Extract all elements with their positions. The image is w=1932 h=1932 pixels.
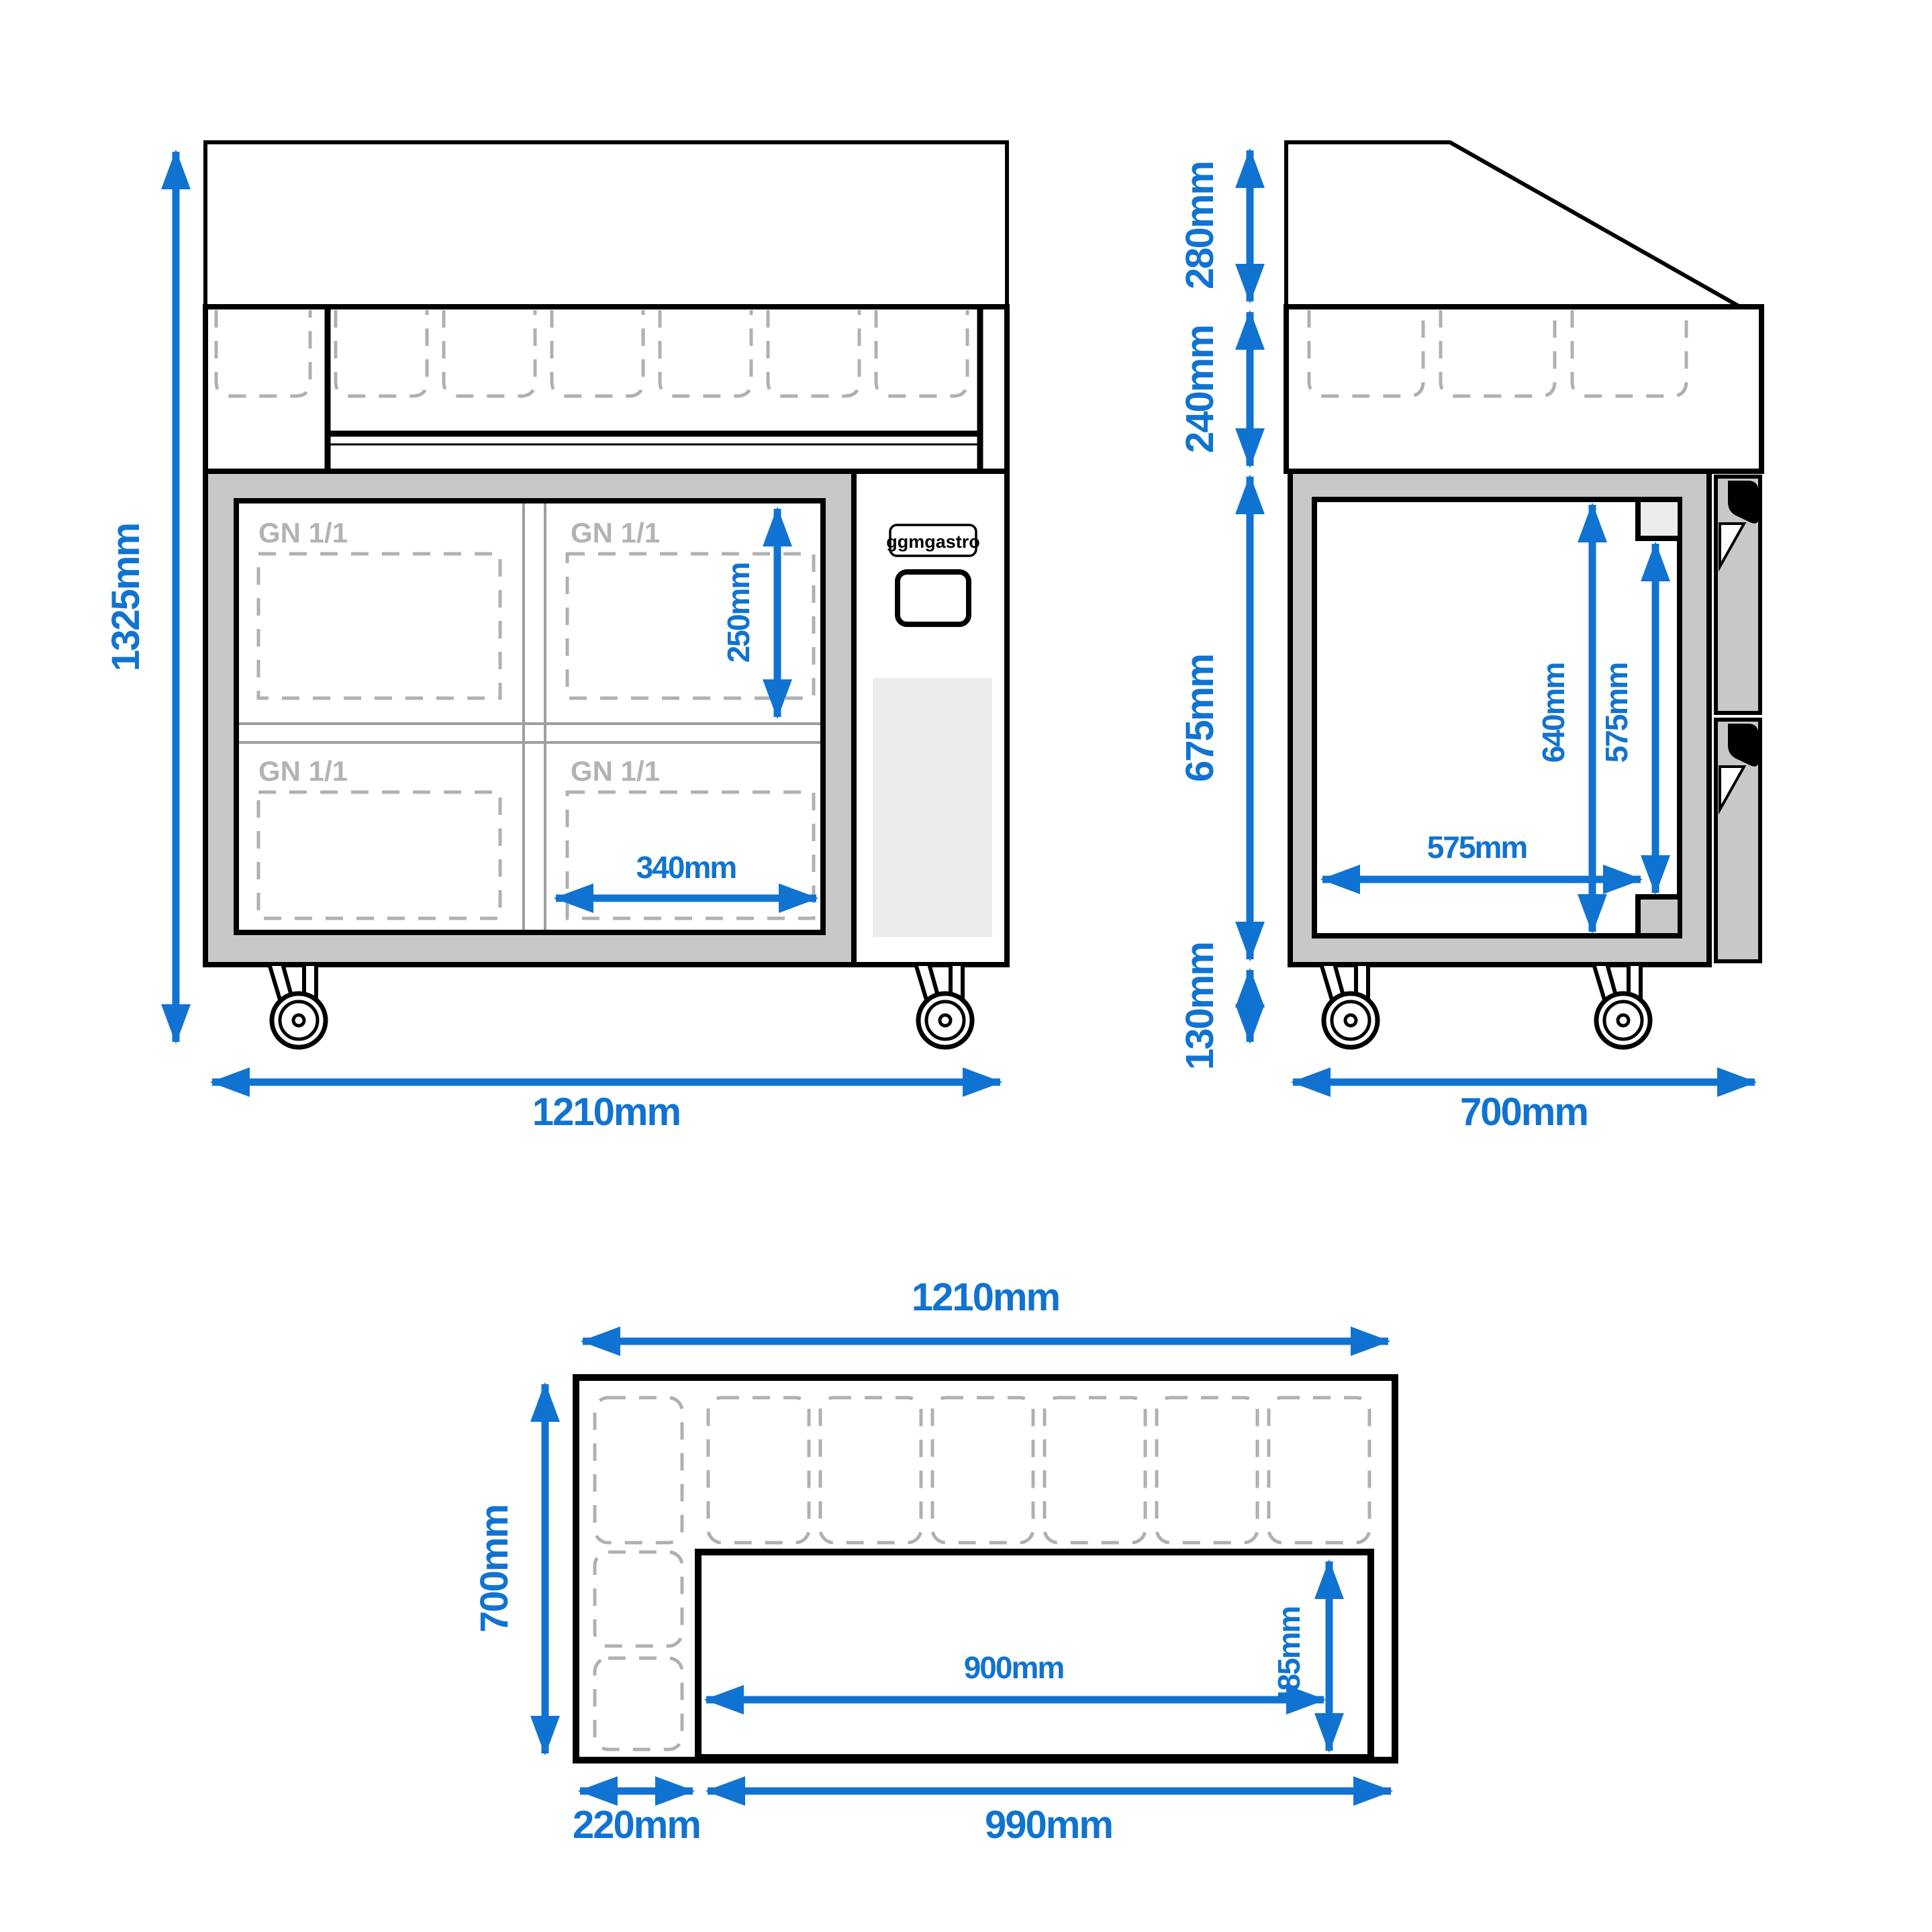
dim-label: 1210mm bbox=[912, 1275, 1059, 1319]
drawer-upper bbox=[1716, 477, 1760, 713]
dim-label: 485mm bbox=[1271, 1607, 1306, 1707]
dim-worktop-width: 990mm bbox=[708, 1791, 1391, 1847]
gn-compartment-label: GN 1/1 bbox=[571, 755, 660, 787]
dim-label: 900mm bbox=[964, 1650, 1064, 1685]
interior-step-top bbox=[1641, 502, 1678, 537]
dim-left-section: 220mm bbox=[573, 1791, 700, 1847]
dim-overall-depth: 700mm bbox=[1293, 1082, 1755, 1134]
side-view: 280mm 240mm 675mm 130mm 640mm 575mm 575m… bbox=[1178, 142, 1761, 1134]
temperature-display bbox=[898, 572, 969, 624]
interior-step-bottom bbox=[1641, 898, 1678, 933]
drawing-stage: GN 1/1 GN 1/1 GN 1/1 GN 1/1 ggmgastro 13… bbox=[0, 0, 1932, 1932]
glass-guard-front bbox=[205, 142, 1007, 307]
gn-compartment-label: GN 1/1 bbox=[258, 517, 348, 548]
caster-front-left bbox=[269, 964, 326, 1047]
dim-overall-height: 1325mm bbox=[104, 152, 176, 1042]
dim-caster-height: 130mm bbox=[1178, 943, 1250, 1070]
glass-guard-side bbox=[1286, 142, 1740, 307]
top-view: 1210mm 700mm 485mm 900mm bbox=[473, 1275, 1395, 1847]
gn-compartment-label: GN 1/1 bbox=[258, 755, 348, 787]
dim-rail-height: 240mm bbox=[1178, 312, 1250, 466]
dim-label: 575mm bbox=[1427, 830, 1527, 865]
dim-label: 250mm bbox=[721, 563, 756, 663]
dim-label: 220mm bbox=[573, 1803, 700, 1847]
dim-label: 130mm bbox=[1178, 943, 1222, 1070]
dim-label: 675mm bbox=[1178, 655, 1222, 782]
dim-label: 240mm bbox=[1178, 326, 1222, 453]
dim-label: 700mm bbox=[473, 1505, 516, 1633]
dim-label: 990mm bbox=[985, 1803, 1112, 1847]
gn-pan-rail-side bbox=[1286, 307, 1761, 471]
refrigerated-counter-technical-drawing: GN 1/1 GN 1/1 GN 1/1 GN 1/1 ggmgastro 13… bbox=[0, 0, 1932, 1932]
brand-logo-text: ggmgastro bbox=[886, 532, 980, 552]
dim-overall-width: 1210mm bbox=[212, 1082, 1000, 1134]
dim-label: 1325mm bbox=[104, 524, 148, 671]
front-view: GN 1/1 GN 1/1 GN 1/1 GN 1/1 ggmgastro 13… bbox=[104, 142, 1007, 1134]
dim-label: 1210mm bbox=[532, 1090, 680, 1134]
dim-label: 340mm bbox=[636, 850, 736, 885]
dim-body-height: 675mm bbox=[1178, 477, 1250, 959]
ventilation-grille bbox=[873, 678, 992, 937]
dim-label: 700mm bbox=[1460, 1090, 1588, 1134]
dim-guard-height: 280mm bbox=[1178, 150, 1250, 301]
caster-front-right bbox=[916, 964, 972, 1047]
dim-label: 575mm bbox=[1599, 663, 1634, 763]
dim-label: 280mm bbox=[1178, 162, 1222, 289]
drawer-lower bbox=[1716, 720, 1760, 961]
caster-side-left bbox=[1321, 964, 1378, 1047]
dim-label: 640mm bbox=[1536, 663, 1571, 763]
dim-top-depth: 700mm bbox=[473, 1384, 545, 1753]
gn-compartment-label: GN 1/1 bbox=[571, 517, 660, 548]
caster-side-right bbox=[1594, 964, 1650, 1047]
